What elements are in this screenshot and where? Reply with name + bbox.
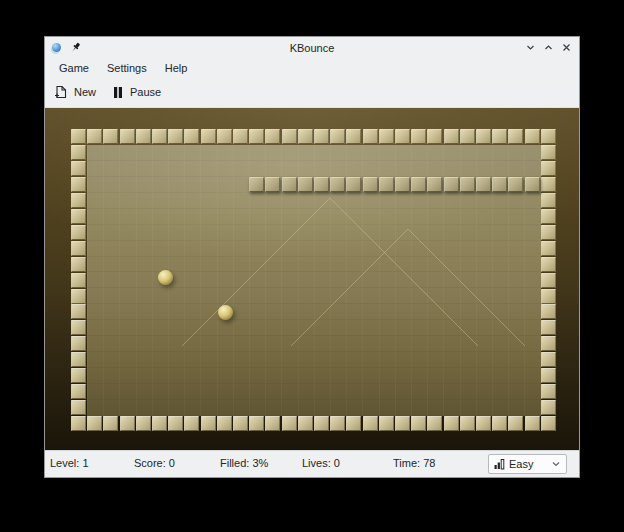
new-game-button[interactable]: New (54, 85, 96, 99)
statusbar: Level: 1 Score: 0 Filled: 3% Lives: 0 Ti… (45, 450, 579, 477)
border-tile (217, 416, 232, 431)
border-tile (444, 129, 459, 144)
border-tile (541, 273, 556, 288)
border-tile (282, 416, 297, 431)
border-tile (541, 368, 556, 383)
titlebar: KBounce (45, 37, 579, 58)
border-tile (87, 129, 102, 144)
border-tile (541, 320, 556, 335)
border-tile (508, 416, 523, 431)
border-tile (541, 161, 556, 176)
level-status: Level: 1 (50, 451, 89, 476)
border-tile (249, 416, 264, 431)
menu-settings[interactable]: Settings (98, 60, 156, 76)
border-tile (120, 129, 135, 144)
border-tile (314, 416, 329, 431)
kbounce-app-icon[interactable] (52, 43, 61, 52)
border-tile (71, 289, 86, 304)
border-tile (476, 416, 491, 431)
wall-tile (265, 177, 280, 192)
border-tile (541, 416, 556, 431)
border-tile (379, 129, 394, 144)
time-status: Time: 78 (393, 451, 435, 476)
border-tile (136, 416, 151, 431)
lives-status: Lives: 0 (302, 451, 340, 476)
border-tile (411, 129, 426, 144)
border-tile (541, 193, 556, 208)
menu-game[interactable]: Game (50, 60, 98, 76)
border-tile (460, 129, 475, 144)
wall-tile (282, 177, 297, 192)
border-tile (71, 320, 86, 335)
wall-tile (476, 177, 491, 192)
wall-tile (460, 177, 475, 192)
border-tile (71, 193, 86, 208)
border-tile (71, 257, 86, 272)
border-tile (184, 416, 199, 431)
border-tile (136, 129, 151, 144)
document-new-icon (54, 85, 68, 99)
score-status: Score: 0 (134, 451, 175, 476)
border-tile (541, 352, 556, 367)
border-tile (395, 416, 410, 431)
border-tile (298, 129, 313, 144)
border-tile (427, 416, 442, 431)
border-tile (168, 416, 183, 431)
filled-status: Filled: 3% (220, 451, 268, 476)
wall-tile (363, 177, 378, 192)
border-tile (492, 129, 507, 144)
border-tile (541, 177, 556, 192)
border-tile (184, 129, 199, 144)
border-tile (71, 400, 86, 415)
border-tile (508, 129, 523, 144)
border-tile (71, 352, 86, 367)
border-tile (71, 368, 86, 383)
minimize-button[interactable] (525, 42, 536, 53)
maximize-button[interactable] (543, 42, 554, 53)
border-tile (201, 129, 216, 144)
wall-tile (379, 177, 394, 192)
wall-tile (411, 177, 426, 192)
border-tile (314, 129, 329, 144)
border-tile (152, 416, 167, 431)
border-tile (541, 400, 556, 415)
border-tile (71, 304, 86, 319)
border-tile (541, 304, 556, 319)
border-tile (460, 416, 475, 431)
border-tile (541, 241, 556, 256)
border-tile (71, 209, 86, 224)
border-tile (541, 225, 556, 240)
wall-tile (314, 177, 329, 192)
wall-tile (508, 177, 523, 192)
border-tile (71, 177, 86, 192)
border-tile (71, 384, 86, 399)
border-tile (492, 416, 507, 431)
wall-tile (427, 177, 442, 192)
border-tile (541, 384, 556, 399)
border-tile (87, 416, 102, 431)
border-tile (71, 273, 86, 288)
border-tile (71, 241, 86, 256)
border-tile (201, 416, 216, 431)
border-tile (71, 336, 86, 351)
border-tile (282, 129, 297, 144)
pause-icon (112, 86, 124, 99)
border-tile (298, 416, 313, 431)
border-tile (265, 129, 280, 144)
border-tile (395, 129, 410, 144)
border-tile (233, 129, 248, 144)
wall-tile (346, 177, 361, 192)
pause-button[interactable]: Pause (112, 86, 161, 99)
toolbar: New Pause (45, 77, 579, 108)
difficulty-select[interactable]: Easy (488, 454, 567, 474)
border-tile (71, 225, 86, 240)
border-tile (444, 416, 459, 431)
border-tile (525, 129, 540, 144)
kbounce-window: KBounce Game Settings Help (44, 36, 580, 478)
border-tile (120, 416, 135, 431)
border-tile (217, 129, 232, 144)
border-tile (265, 416, 280, 431)
border-tile (71, 161, 86, 176)
menubar: Game Settings Help (45, 58, 579, 77)
pause-label: Pause (130, 86, 161, 98)
border-tile (103, 129, 118, 144)
border-tile (525, 416, 540, 431)
border-tile (541, 289, 556, 304)
border-tile (249, 129, 264, 144)
border-tile (363, 416, 378, 431)
border-tile (152, 129, 167, 144)
border-tile (379, 416, 394, 431)
border-tile (71, 129, 86, 144)
border-tile (71, 145, 86, 160)
border-tile (541, 336, 556, 351)
wall-tile (395, 177, 410, 192)
menu-help[interactable]: Help (156, 60, 197, 76)
border-tile (346, 416, 361, 431)
difficulty-value: Easy (509, 458, 533, 470)
difficulty-bars-icon (494, 458, 505, 470)
border-tile (71, 416, 86, 431)
border-tile (541, 145, 556, 160)
border-tile (330, 129, 345, 144)
pin-icon[interactable] (70, 42, 82, 54)
border-tile (346, 129, 361, 144)
ball (158, 270, 173, 285)
border-tile (476, 129, 491, 144)
border-tile (411, 416, 426, 431)
game-board[interactable] (45, 108, 579, 450)
border-tile (541, 257, 556, 272)
wall-tile (492, 177, 507, 192)
wall-tile (525, 177, 540, 192)
wall-tile (298, 177, 313, 192)
border-tile (103, 416, 118, 431)
wall-tile (444, 177, 459, 192)
border-tile (427, 129, 442, 144)
border-tile (168, 129, 183, 144)
window-title: KBounce (45, 42, 579, 54)
ball (218, 305, 233, 320)
border-tile (541, 209, 556, 224)
border-tile (233, 416, 248, 431)
wall-tile (330, 177, 345, 192)
chevron-down-icon (551, 459, 561, 469)
border-tile (363, 129, 378, 144)
border-tile (330, 416, 345, 431)
border-tile (541, 129, 556, 144)
new-game-label: New (74, 86, 96, 98)
close-button[interactable] (561, 42, 572, 53)
wall-tile (249, 177, 264, 192)
